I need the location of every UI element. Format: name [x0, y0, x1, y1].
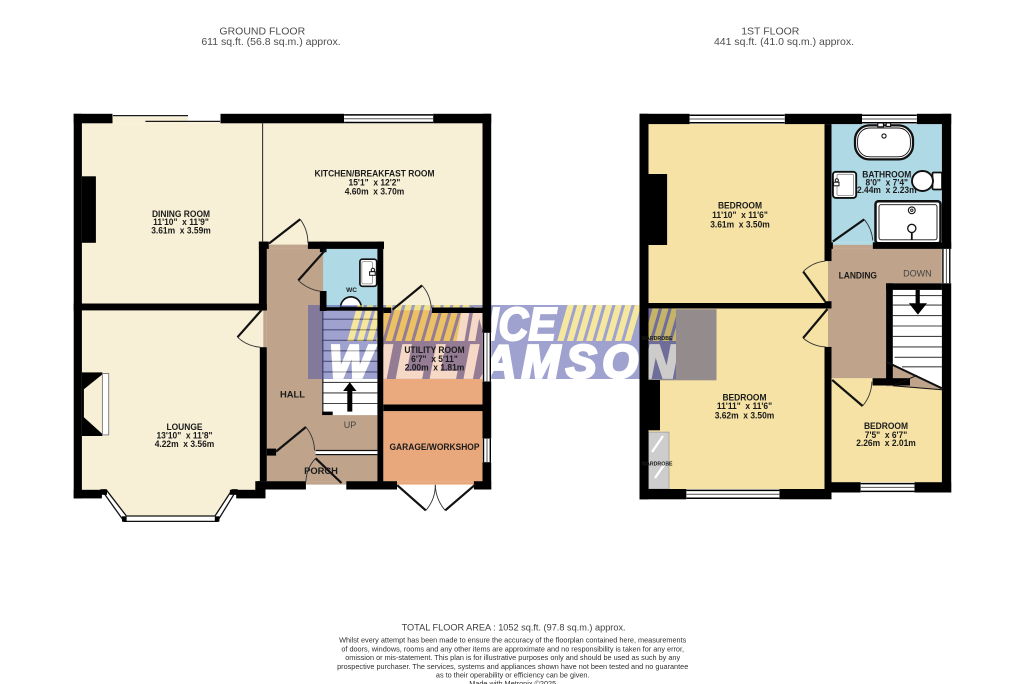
- svg-text:GARAGE/WORKSHOP: GARAGE/WORKSHOP: [390, 441, 480, 452]
- svg-text:3.62m x 3.50m: 3.62m x 3.50m: [715, 410, 775, 421]
- svg-text:Made with Metropix ©2025: Made with Metropix ©2025: [469, 679, 556, 684]
- svg-text:UP: UP: [344, 420, 357, 430]
- svg-text:WARDROBE: WARDROBE: [642, 336, 674, 342]
- svg-text:2.00m x 1.81m: 2.00m x 1.81m: [405, 361, 465, 372]
- svg-text:611 sq.ft. (56.8 sq.m.) approx: 611 sq.ft. (56.8 sq.m.) approx.: [201, 36, 340, 48]
- svg-text:of doors, windows, rooms and a: of doors, windows, rooms and any other i…: [341, 644, 684, 653]
- svg-text:omission or mis-statement. Thi: omission or mis-statement. This plan is …: [345, 653, 680, 662]
- svg-text:TOTAL FLOOR AREA : 1052 sq.ft.: TOTAL FLOOR AREA : 1052 sq.ft. (97.8 sq.…: [402, 621, 626, 632]
- svg-text:2.44m x 2.23m: 2.44m x 2.23m: [857, 184, 917, 195]
- svg-text:DOWN: DOWN: [903, 268, 932, 278]
- svg-text:WC: WC: [346, 287, 357, 294]
- svg-text:PORCH: PORCH: [304, 465, 338, 476]
- svg-text:2.26m x 2.01m: 2.26m x 2.01m: [856, 437, 916, 448]
- svg-text:4.22m x 3.56m: 4.22m x 3.56m: [155, 438, 215, 449]
- svg-text:prospective purchaser. The ser: prospective purchaser. The services, sys…: [337, 662, 688, 671]
- svg-text:HALL: HALL: [280, 389, 305, 400]
- svg-text:WARDROBE: WARDROBE: [642, 461, 674, 467]
- svg-text:Whilst every attempt has been: Whilst every attempt has been made to en…: [339, 636, 687, 645]
- svg-text:4.60m x 3.70m: 4.60m x 3.70m: [345, 186, 405, 197]
- svg-text:441 sq.ft. (41.0 sq.m.) approx: 441 sq.ft. (41.0 sq.m.) approx.: [714, 36, 854, 48]
- svg-text:3.61m x 3.50m: 3.61m x 3.50m: [710, 219, 770, 230]
- svg-text:3.61m x 3.59m: 3.61m x 3.59m: [151, 224, 211, 235]
- svg-text:LANDING: LANDING: [839, 270, 877, 281]
